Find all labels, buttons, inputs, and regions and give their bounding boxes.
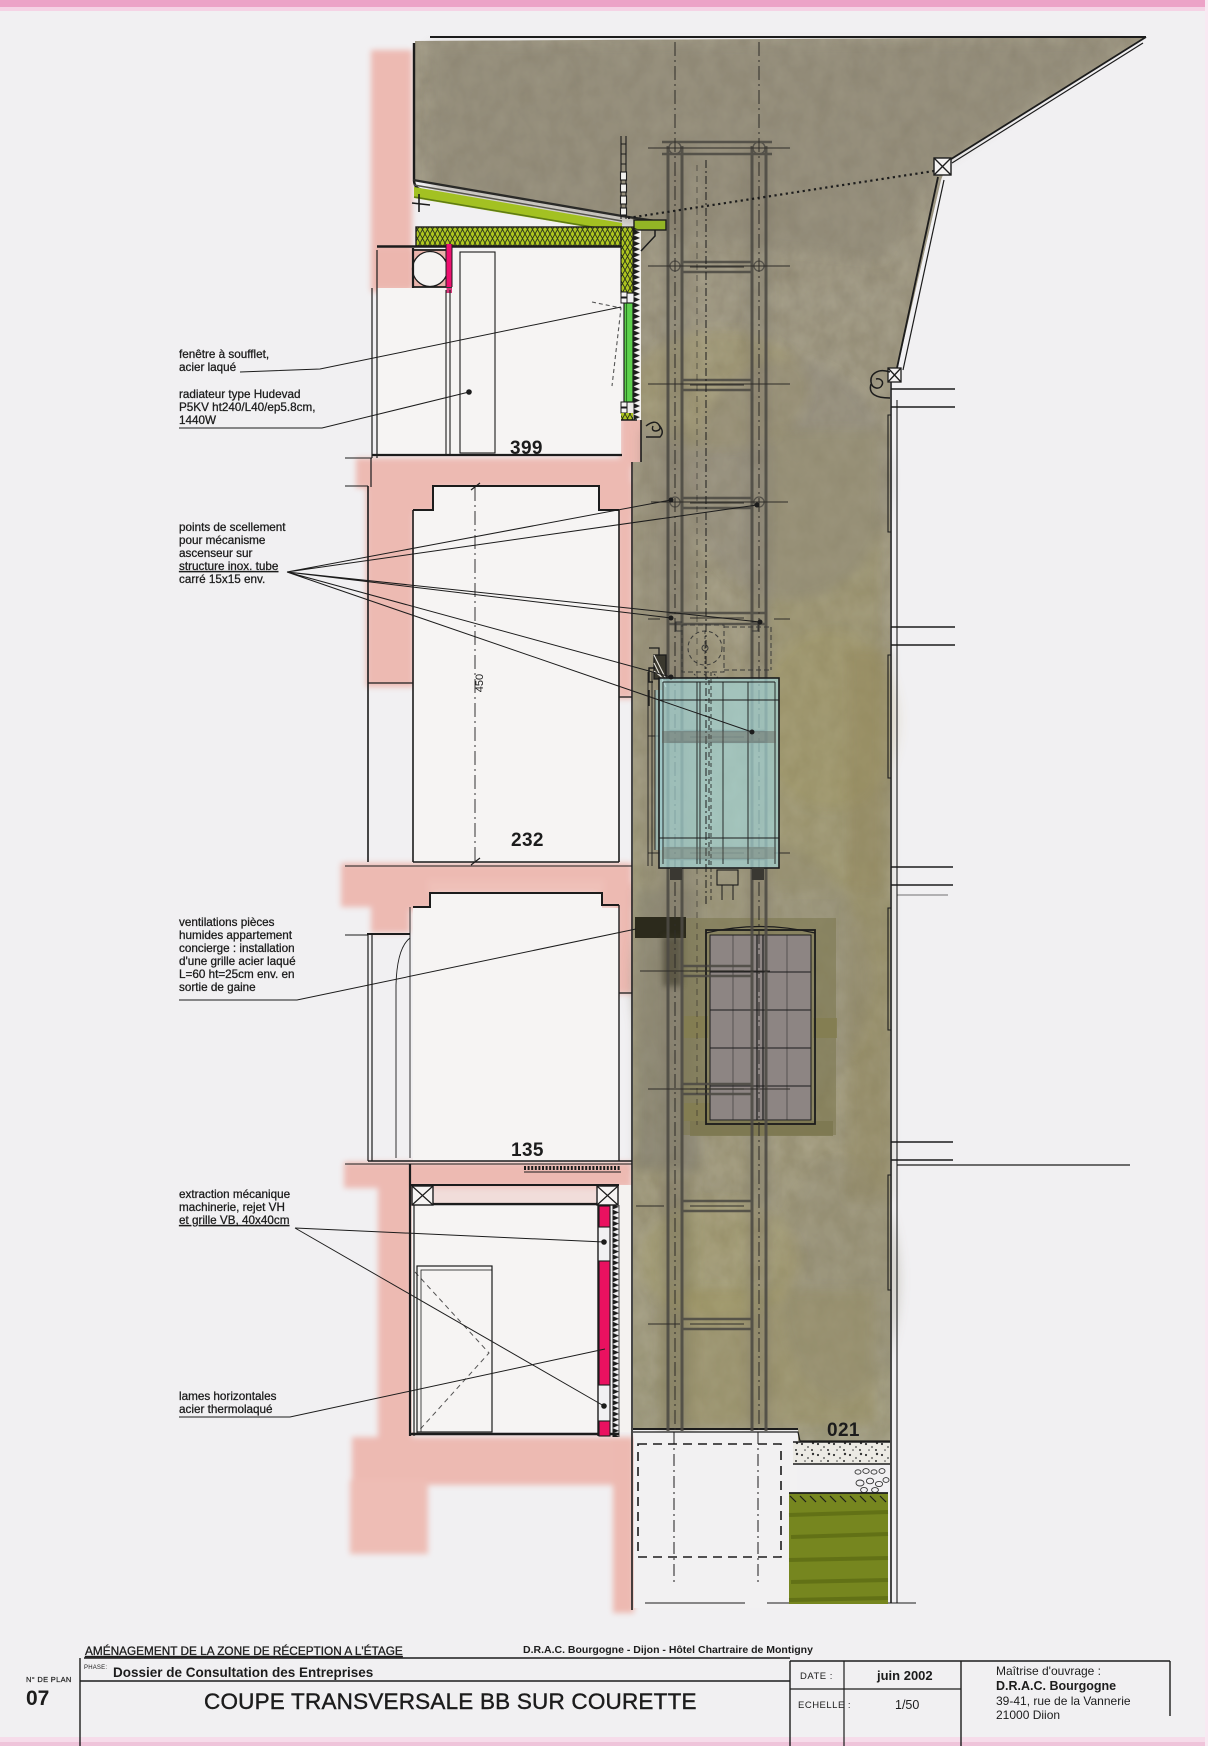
svg-text:machinerie, rejet VH: machinerie, rejet VH: [179, 1201, 285, 1214]
svg-text:juin 2002: juin 2002: [876, 1668, 933, 1683]
svg-text:concierge : installation: concierge : installation: [179, 942, 295, 955]
svg-text:ventilations pièces: ventilations pièces: [179, 916, 275, 929]
svg-text:points de scellement: points de scellement: [179, 521, 286, 534]
svg-text:carré 15x15 env.: carré 15x15 env.: [179, 573, 265, 586]
svg-text:ascenseur sur: ascenseur sur: [179, 547, 253, 560]
svg-text:DATE :: DATE :: [800, 1671, 833, 1682]
svg-text:et grille VB, 40x40cm: et grille VB, 40x40cm: [179, 1214, 289, 1227]
svg-text:humides appartement: humides appartement: [179, 929, 293, 942]
svg-text:lames horizontales: lames horizontales: [179, 1390, 277, 1403]
svg-text:21000 Diion: 21000 Diion: [996, 1708, 1060, 1722]
svg-text:07: 07: [26, 1687, 49, 1710]
svg-text:399: 399: [510, 438, 543, 459]
svg-text:acier thermolaqué: acier thermolaqué: [179, 1403, 273, 1416]
svg-text:extraction mécanique: extraction mécanique: [179, 1188, 290, 1201]
svg-text:D.R.A.C. Bourgogne - Dijon - H: D.R.A.C. Bourgogne - Dijon - Hôtel Chart…: [523, 1644, 813, 1656]
svg-text:450: 450: [474, 674, 486, 692]
svg-text:135: 135: [511, 1140, 544, 1161]
svg-text:PHASE:: PHASE:: [84, 1665, 107, 1671]
svg-text:N° DE PLAN: N° DE PLAN: [26, 1675, 72, 1684]
svg-text:Dossier de Consultation des En: Dossier de Consultation des Entreprises: [113, 1665, 373, 1680]
svg-text:AMÉNAGEMENT DE LA ZONE DE RÉCE: AMÉNAGEMENT DE LA ZONE DE RÉCEPTION A L'…: [85, 1644, 403, 1658]
svg-text:P5KV ht240/L40/ep5.8cm,: P5KV ht240/L40/ep5.8cm,: [179, 401, 315, 414]
svg-text:ECHELLE :: ECHELLE :: [798, 1700, 851, 1711]
svg-text:radiateur type Hudevad: radiateur type Hudevad: [179, 388, 301, 401]
svg-text:structure inox. tube: structure inox. tube: [179, 560, 278, 573]
svg-text:1/50: 1/50: [895, 1698, 919, 1712]
svg-text:fenêtre à soufflet,: fenêtre à soufflet,: [179, 348, 269, 361]
svg-text:021: 021: [827, 1420, 860, 1441]
svg-text:1440W: 1440W: [179, 414, 216, 427]
svg-text:D.R.A.C. Bourgogne: D.R.A.C. Bourgogne: [996, 1679, 1116, 1693]
svg-text:232: 232: [511, 830, 544, 851]
svg-text:pour mécanisme: pour mécanisme: [179, 534, 265, 547]
svg-text:Maîtrise d'ouvrage :: Maîtrise d'ouvrage :: [996, 1664, 1101, 1678]
svg-text:sortie de gaine: sortie de gaine: [179, 981, 256, 994]
svg-text:L=60 ht=25cm env. en: L=60 ht=25cm env. en: [179, 968, 294, 981]
svg-text:d'une grille acier laqué: d'une grille acier laqué: [179, 955, 296, 968]
svg-text:COUPE TRANSVERSALE BB SUR COUR: COUPE TRANSVERSALE BB SUR COURETTE: [204, 1689, 697, 1714]
svg-text:acier laqué: acier laqué: [179, 361, 236, 374]
svg-text:39-41, rue de la Vannerie: 39-41, rue de la Vannerie: [996, 1694, 1131, 1708]
